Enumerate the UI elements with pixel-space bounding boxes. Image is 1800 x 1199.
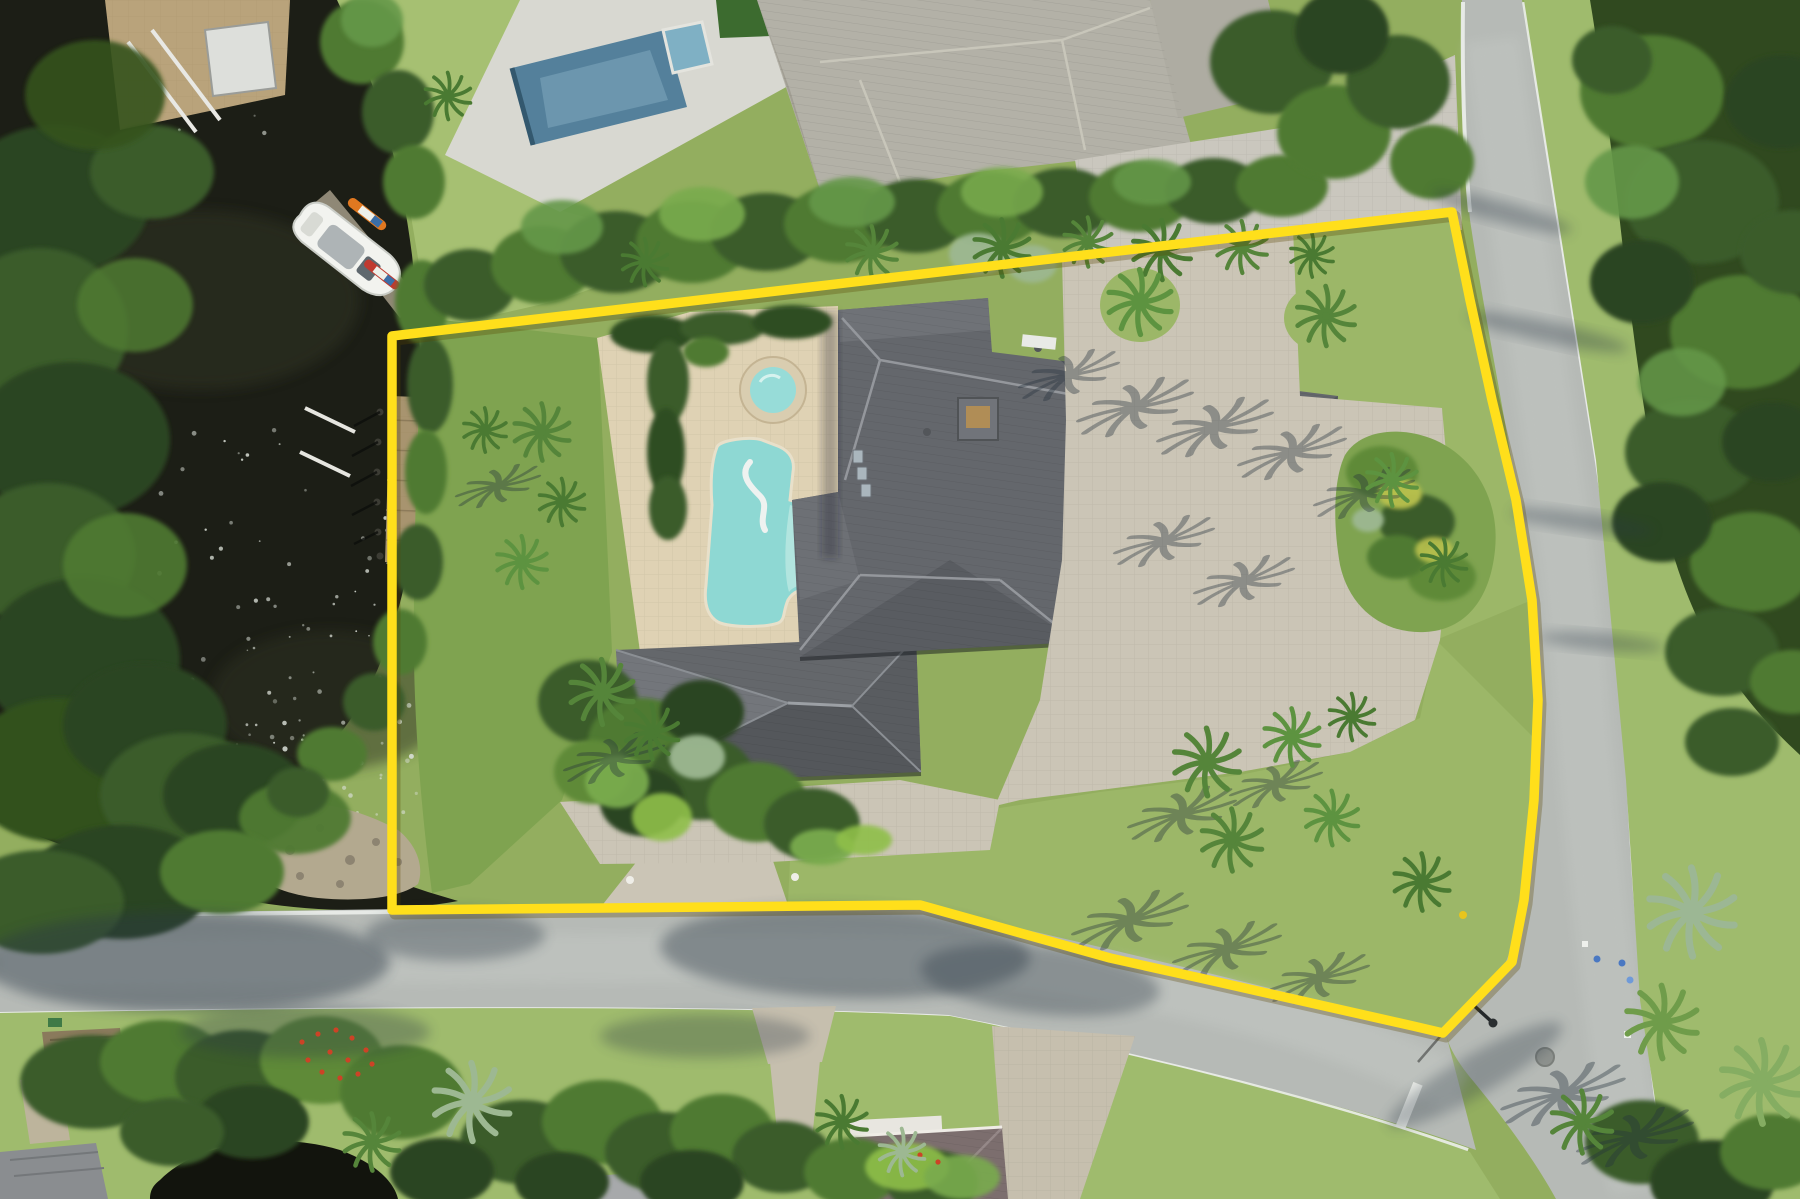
water-sparkle: [282, 746, 287, 751]
palm-crown: [648, 728, 655, 735]
palm-crown: [869, 249, 876, 256]
tree-canopy: [407, 337, 453, 433]
flower-dot: [327, 1049, 332, 1054]
tree-canopy: [649, 476, 687, 540]
palm-crown: [519, 559, 526, 566]
water-sparkle: [262, 131, 266, 135]
flower-dot: [319, 1069, 324, 1074]
street-lamp-head: [1489, 1019, 1498, 1028]
palm-crown: [368, 1138, 376, 1146]
water-sparkle: [192, 431, 197, 436]
water-sparkle: [365, 569, 369, 573]
tree-canopy: [1685, 708, 1779, 776]
water-sparkle: [335, 595, 338, 598]
tree-canopy: [160, 830, 284, 914]
water-sparkle: [259, 540, 261, 542]
water-sparkle: [381, 742, 384, 745]
palm-crown: [1228, 836, 1236, 844]
boat-lift-canopy: [205, 22, 276, 96]
palm-crown: [467, 1097, 478, 1108]
water-sparkle: [373, 604, 375, 606]
tree-canopy: [267, 767, 329, 817]
water-sparkle: [313, 671, 315, 673]
tree-canopy: [660, 680, 744, 744]
palm-crown: [839, 1119, 846, 1126]
flower-dot: [345, 1057, 350, 1062]
water-sparkle: [368, 635, 370, 637]
water-sparkle: [303, 734, 305, 736]
water-sparkle: [219, 547, 223, 551]
water-sparkle: [247, 650, 249, 652]
flower-dot: [355, 1071, 360, 1076]
water-sparkle: [241, 459, 243, 461]
water-sparkle: [348, 793, 353, 798]
water-sparkle: [267, 691, 271, 695]
tree-canopy: [632, 793, 692, 841]
tree-canopy: [383, 145, 445, 219]
tree-canopy: [836, 825, 892, 855]
palm-crown: [1322, 312, 1330, 320]
water-sparkle: [380, 774, 383, 777]
palm-crown: [899, 1149, 905, 1155]
chimney-cap: [966, 406, 990, 428]
water-sparkle: [272, 428, 276, 432]
water-sparkle: [342, 786, 346, 790]
flower-dot: [333, 1027, 338, 1032]
spa: [750, 367, 796, 413]
water-sparkle: [317, 689, 322, 694]
water-sparkle: [287, 562, 291, 566]
water-sparkle: [266, 597, 270, 601]
water-sparkle: [354, 591, 356, 593]
water-sparkle: [253, 647, 256, 650]
water-sparkle: [302, 624, 304, 626]
flower-dot: [305, 1057, 310, 1062]
tree-canopy: [120, 1098, 224, 1166]
water-sparkle: [289, 636, 291, 638]
tree-canopy: [405, 430, 447, 514]
tree-canopy: [683, 337, 729, 367]
palm-crown: [1756, 1076, 1767, 1087]
neighbor-spa: [663, 22, 712, 73]
flower-dot: [369, 1061, 374, 1066]
water-sparkle: [254, 115, 256, 117]
water-sparkle: [341, 721, 345, 725]
palm-crown: [1203, 758, 1212, 767]
water-sparkle: [409, 754, 414, 759]
house-wall-shadow: [822, 312, 838, 558]
tree-canopy: [77, 258, 193, 352]
water-sparkle: [407, 703, 412, 708]
tree-canopy: [659, 187, 745, 241]
palm-crown: [1349, 714, 1355, 720]
water-sparkle: [201, 657, 206, 662]
palm-crown: [1657, 1017, 1667, 1027]
water-sparkle: [273, 699, 277, 703]
water-sparkle: [415, 792, 418, 795]
water-sparkle: [273, 742, 275, 744]
flower-dot: [337, 1075, 342, 1080]
palm-crown: [482, 427, 488, 433]
utility-box: [48, 1018, 62, 1027]
water-sparkle: [205, 529, 207, 531]
water-sparkle: [330, 635, 333, 638]
flower-dot: [299, 1039, 304, 1044]
palm-crown: [1418, 878, 1426, 886]
water-sparkle: [405, 759, 410, 764]
water-sparkle: [246, 723, 249, 726]
palm-crown: [538, 428, 546, 436]
palm-crown: [1441, 559, 1447, 565]
palm-crown: [1136, 298, 1145, 307]
aerial-photo: [0, 0, 1800, 1199]
water-sparkle: [279, 443, 281, 445]
tree-canopy: [521, 200, 603, 254]
water-sparkle: [401, 810, 405, 814]
tree-canopy: [924, 1155, 1000, 1199]
aerial-photo-canvas: [0, 0, 1800, 1199]
water-sparkle: [290, 736, 294, 740]
water-sparkle: [298, 719, 300, 721]
palm-crown: [445, 93, 451, 99]
palm-crown: [642, 259, 648, 265]
water-sparkle: [273, 605, 276, 608]
entry-light: [791, 873, 799, 881]
water-sparkle: [238, 452, 240, 454]
palm-crown: [559, 499, 565, 505]
tree-shadow: [600, 1014, 810, 1058]
water-sparkle: [210, 556, 214, 560]
tree-canopy: [1113, 159, 1191, 205]
palm-crown: [1288, 733, 1296, 741]
water-sparkle: [380, 777, 382, 779]
tree-shadow: [180, 1006, 430, 1058]
tree-canopy: [961, 167, 1043, 217]
water-sparkle: [223, 440, 225, 442]
water-sparkle: [254, 599, 258, 603]
water-sparkle: [282, 721, 287, 726]
water-sparkle: [304, 489, 307, 492]
water-sparkle: [355, 630, 357, 632]
tree-canopy: [1638, 348, 1726, 416]
water-sparkle: [333, 603, 336, 606]
tree-canopy: [809, 177, 895, 227]
water-sparkle: [255, 724, 258, 727]
palm-crown: [1085, 239, 1092, 246]
flower-dot: [363, 1047, 368, 1052]
hydrant-marker: [1459, 911, 1467, 919]
water-sparkle: [246, 637, 250, 641]
tree-canopy: [1585, 145, 1679, 219]
water-sparkle: [306, 627, 310, 631]
tree-canopy: [1390, 125, 1474, 199]
water-sparkle: [375, 813, 378, 816]
tree-canopy: [362, 70, 434, 154]
palm-crown: [1578, 1118, 1586, 1126]
flower-dot: [315, 1031, 320, 1036]
palm-crown: [1389, 477, 1396, 484]
water-sparkle: [229, 521, 233, 525]
palm-crown: [998, 244, 1006, 252]
palm-crown: [1686, 906, 1698, 918]
palm-crown: [1328, 814, 1335, 821]
water-sparkle: [180, 467, 184, 471]
water-sparkle: [270, 735, 275, 740]
water-sparkle: [248, 733, 251, 736]
water-sparkle: [236, 605, 240, 609]
water-sparkle: [367, 556, 372, 561]
tree-canopy: [1572, 26, 1652, 94]
water-sparkle: [159, 491, 164, 496]
palm-crown: [598, 688, 607, 697]
tree-canopy: [63, 513, 187, 617]
flower-dot: [935, 1159, 940, 1164]
flower-dot: [349, 1035, 354, 1040]
tree-canopy: [25, 40, 165, 150]
entry-light: [626, 876, 634, 884]
water-sparkle: [293, 697, 296, 700]
water-sparkle: [246, 453, 250, 457]
tree-canopy: [752, 305, 832, 339]
tree-canopy: [610, 315, 694, 353]
bottom-left-structure: [0, 1143, 108, 1199]
water-sparkle: [289, 676, 292, 679]
tree-canopy: [1590, 240, 1694, 324]
palm-crown: [1309, 252, 1315, 258]
